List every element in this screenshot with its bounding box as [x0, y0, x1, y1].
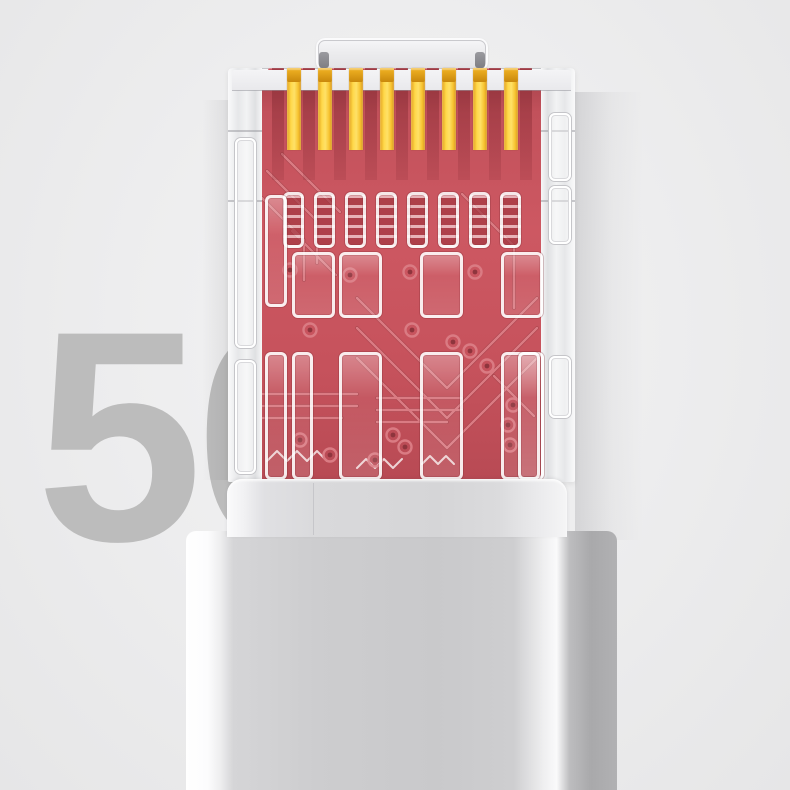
rj45-connector [228, 68, 575, 482]
connector-latch [316, 38, 488, 71]
wall-window [235, 360, 256, 474]
wall-window [549, 186, 571, 244]
pcb-window [265, 352, 287, 480]
pin-slot-frame [438, 192, 459, 248]
pin-slot-frame [376, 192, 397, 248]
pcb-window [292, 252, 335, 318]
cable-boot [227, 479, 567, 537]
product-photo: { "image": { "type": "product-photo", "s… [0, 0, 790, 790]
solder-pad-hole [328, 453, 333, 458]
pcb-window [420, 352, 463, 480]
solder-pad-hole [451, 340, 456, 345]
solder-pad-hole [408, 270, 413, 275]
connector-left-shadow [196, 100, 228, 480]
solder-pad-hole [410, 328, 415, 333]
gold-contact-tip [504, 68, 518, 82]
wall-window [549, 113, 571, 181]
solder-pad-hole [485, 364, 490, 369]
gold-contact-tip [318, 68, 332, 82]
boot-seam-line [313, 483, 314, 535]
solder-pad-hole [308, 328, 313, 333]
pin-slot-frame [314, 192, 335, 248]
solder-pad-hole [403, 445, 408, 450]
pcb-window [501, 252, 543, 318]
pcb-window [265, 195, 287, 307]
wall-step-line [228, 130, 262, 132]
pin-slot-frame [500, 192, 521, 248]
solder-pad-hole [391, 433, 396, 438]
pcb-window [420, 252, 463, 318]
solder-pad-hole [468, 349, 473, 354]
latch-right-nub [475, 52, 485, 68]
gold-contact-tip [380, 68, 394, 82]
pcb-window [339, 352, 382, 480]
pin-slot-frame [469, 192, 490, 248]
pin-slot-frame [407, 192, 428, 248]
cable-body [186, 531, 617, 790]
gold-contact-tip [473, 68, 487, 82]
gold-contact-tip [349, 68, 363, 82]
pcb-window [339, 252, 382, 318]
solder-pad-hole [473, 270, 478, 275]
pin-slot-frame [345, 192, 366, 248]
wall-window [549, 356, 571, 418]
connector-right-shadow [575, 92, 643, 540]
wall-window [235, 138, 256, 348]
gold-contact-tip [442, 68, 456, 82]
top-rim [232, 70, 571, 90]
pcb-window [292, 352, 313, 480]
pcb-window [518, 352, 540, 480]
latch-left-nub [319, 52, 329, 68]
gold-contact-tip [411, 68, 425, 82]
gold-contact-tip [287, 68, 301, 82]
